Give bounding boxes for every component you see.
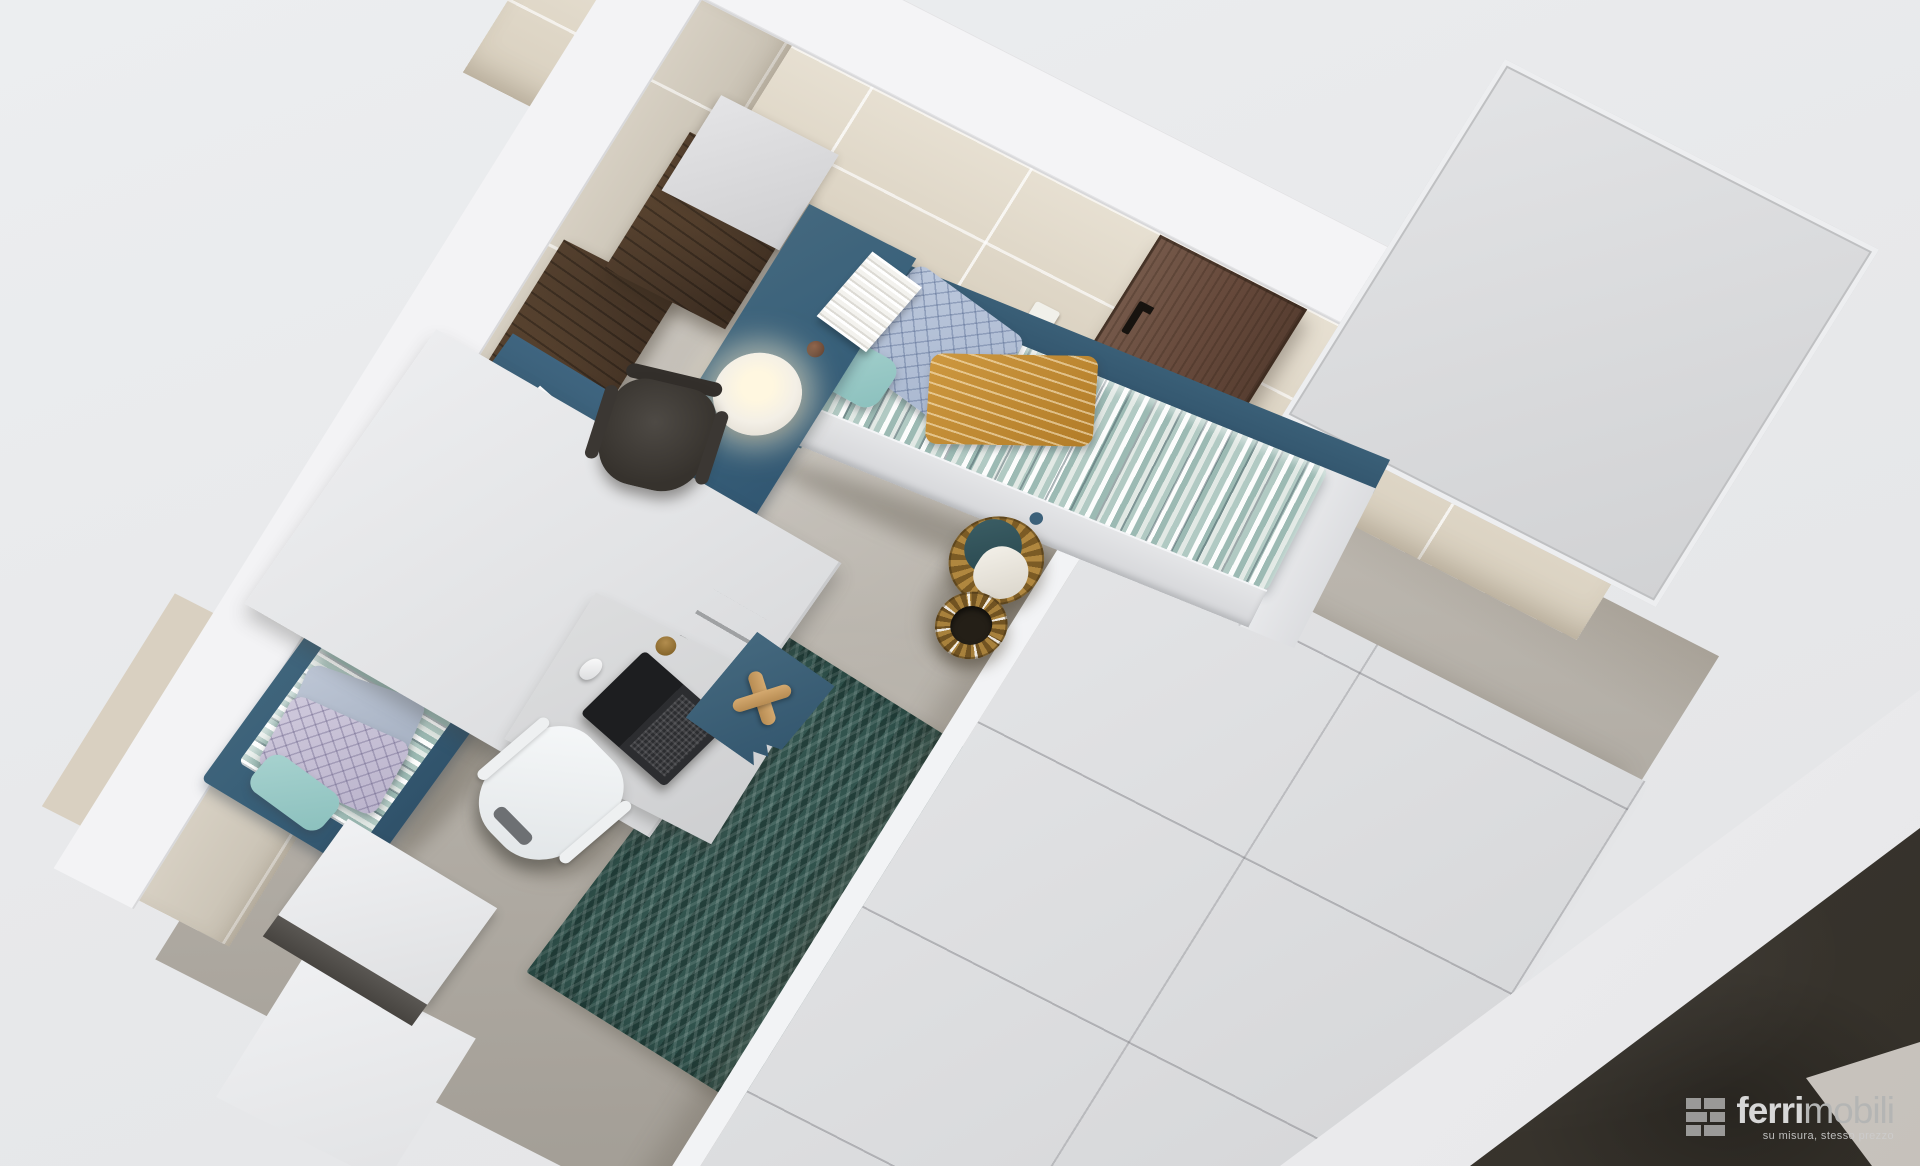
door-handle <box>1121 301 1147 335</box>
render-viewport: ferrimobili su misura, stesso prezzo <box>0 0 1920 1166</box>
brand-name-bold: ferri <box>1736 1090 1803 1131</box>
drawer-knob <box>1027 510 1045 526</box>
decor-jar <box>803 338 827 360</box>
brand-tagline: su misura, stesso prezzo <box>1763 1130 1894 1142</box>
computer-mouse <box>576 655 607 684</box>
brand-name-light: mobili <box>1803 1090 1894 1131</box>
brand-watermark: ferrimobili su misura, stesso prezzo <box>1686 1092 1894 1142</box>
tile-grid-logo-icon <box>1686 1098 1726 1136</box>
gold-pillow <box>925 353 1099 447</box>
brand-name: ferrimobili <box>1736 1092 1894 1129</box>
wooden-toy-plane <box>717 656 807 740</box>
pen-holder <box>652 633 680 659</box>
brand-text: ferrimobili su misura, stesso prezzo <box>1736 1092 1894 1142</box>
